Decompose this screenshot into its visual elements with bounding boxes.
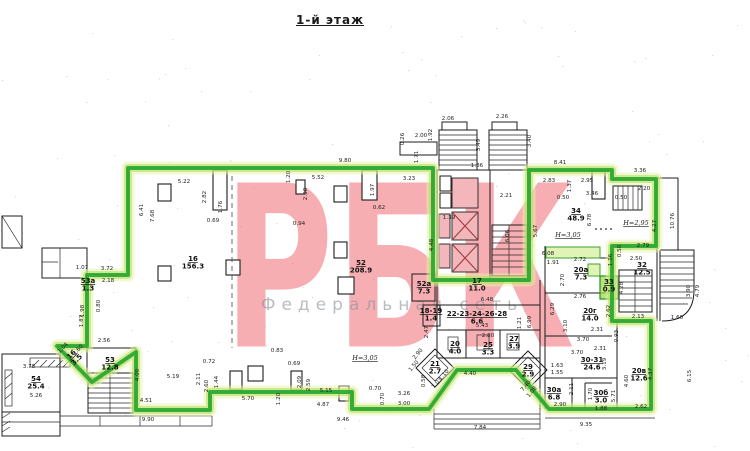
dimension-label: 6.08 [542, 251, 555, 257]
dimension-label: 4.51 [140, 398, 153, 404]
dimension-label: 2.70 [560, 273, 566, 286]
dimension-label: 5.67 [533, 224, 539, 237]
dimension-label: 3.26 [398, 391, 411, 397]
dimension-label: 3.78 [23, 364, 36, 370]
room-label: 53а1.3 [81, 277, 96, 293]
dimension-label: 3.23 [403, 176, 416, 182]
room-label: 3212.5 [633, 261, 650, 277]
room-label: 16156.3 [182, 255, 204, 271]
dimension-label: 2.31 [591, 327, 604, 333]
dimension-label: 2.72 [574, 257, 586, 263]
room-label: 20г14.0 [581, 307, 598, 323]
dimension-label: 2.95 [581, 178, 594, 184]
dimension-label: 4.48 [429, 238, 435, 251]
dimension-label: 2.59 [306, 378, 312, 391]
dimension-label: 3.70 [571, 350, 584, 356]
dimension-label: 3.36 [634, 168, 647, 174]
dimension-label: 0.69 [288, 361, 301, 367]
dimension-label: 1.70 [588, 387, 594, 400]
dimension-label: 10.76 [670, 213, 676, 229]
dimension-label: 2.50 [630, 256, 643, 262]
dimension-label: 9.46 [337, 417, 350, 423]
dimension-label: 0.50 [557, 195, 570, 201]
dimension-label: 1.37 [567, 179, 573, 192]
dimension-label: 0.83 [271, 348, 284, 354]
dimension-label: 5.15 [320, 388, 333, 394]
dimension-label: 3.72 [101, 266, 113, 272]
dimension-label: 3.90 [686, 284, 692, 297]
room-label: 30-3124.6 [581, 356, 604, 372]
dimension-label: 4.27 [652, 219, 658, 232]
dimension-label: 0.70 [369, 386, 382, 392]
dimension-label: 7.84 [474, 425, 487, 431]
elevator-machine-room [452, 178, 478, 208]
dimension-label: 4.79 [695, 284, 701, 297]
dimension-label: 9.35 [580, 422, 593, 428]
dimension-label: 1.88 [595, 406, 608, 412]
floor-plan-page: 1-й этаж РБК Федеральная сеть [0, 0, 750, 451]
dimension-label: 3.49 [476, 138, 482, 151]
room-label: 5425.4 [27, 375, 44, 391]
dimension-label: 5.71 [611, 389, 617, 402]
room-label: 52а7.3 [417, 280, 432, 296]
dimension-label: 9.90 [142, 417, 155, 423]
room-label: 330.9 [603, 278, 616, 294]
dimension-label: 2.13 [632, 314, 645, 320]
elevator-side-box [439, 244, 450, 268]
dimension-label: 2.20 [638, 186, 651, 192]
dimension-label: 1.21 [517, 316, 523, 329]
dimension-label: 1.71 [414, 150, 420, 163]
room-label: 30а6.8 [547, 386, 562, 402]
dimension-label: 4.37 [648, 367, 654, 380]
dimension-label: 4.28 [619, 281, 625, 294]
dimension-label: 3.19 [602, 357, 608, 370]
dimension-label: 2.76 [574, 294, 587, 300]
dimension-label: 2.80 [482, 333, 495, 339]
dimension-label: 2.47 [424, 325, 430, 338]
dimension-label: 1.87 [79, 314, 85, 327]
dimension-label: 4.60 [624, 374, 630, 387]
dimension-label: 2.09 [297, 375, 303, 388]
dimension-label: 1.91 [547, 260, 560, 266]
dimension-label: 3.46 [586, 191, 599, 197]
dimension-label: 3.40 [527, 134, 533, 147]
dimension-label: 8.41 [554, 160, 567, 166]
elevator-shaft-icon [452, 244, 478, 272]
dimension-label: 4.00 [135, 368, 141, 381]
dimension-label: 5.26 [30, 393, 43, 399]
dimension-label: 1.16 [608, 253, 614, 266]
room-label: 273.9 [508, 335, 521, 351]
dimension-label: 5.52 [312, 175, 324, 181]
dimension-label: 6.29 [550, 302, 556, 315]
room-label: 253.3 [482, 341, 495, 357]
dimension-label: 1.76 [218, 200, 224, 213]
dimension-label: 5.70 [242, 396, 255, 402]
dimension-label: 2.31 [594, 346, 607, 352]
dimension-label: 2.21 [500, 193, 513, 199]
dimension-label: 6.06 [505, 229, 511, 242]
floor-plan-drawing: РБК Федеральная сеть [0, 18, 750, 448]
dimension-label: 6.48 [481, 297, 494, 303]
dimension-label: 5.19 [167, 374, 180, 380]
room-label: 20в12.6 [630, 367, 647, 383]
dimension-label: 0.50 [615, 195, 628, 201]
dimension-label: 1.97 [370, 183, 376, 196]
grid-dots [595, 228, 612, 230]
dimension-label: 2.62 [635, 404, 647, 410]
room-label: 30б3.0 [594, 389, 609, 405]
dimension-label: 0.58 [421, 374, 427, 387]
room-label: 212.7 [429, 360, 442, 376]
dimension-label: 2.98 [303, 187, 309, 200]
height-label: Н=3,05 [351, 354, 378, 362]
left-annex [2, 216, 87, 278]
dimension-label: 6.41 [139, 203, 145, 216]
dimension-label: 2.11 [569, 382, 575, 395]
dimension-label: 3.00 [398, 401, 411, 407]
dimension-label: 1.07 [76, 265, 89, 271]
height-label: Н=2,95 [622, 219, 649, 227]
dimension-label: 0.94 [293, 221, 306, 227]
dimension-label: 2.62 [606, 305, 612, 317]
highlighted-cell [588, 264, 600, 276]
dimension-label: 2.11 [196, 372, 202, 385]
room-label: 204.0 [449, 340, 462, 356]
dimension-label: 6.15 [687, 369, 693, 382]
dimension-label: 2.79 [637, 243, 650, 249]
dimension-label: 2.18 [102, 278, 115, 284]
dimension-label: 1.39 [443, 215, 456, 221]
height-label: Н=3,05 [554, 231, 581, 239]
dimension-label: 2.06 [442, 116, 455, 122]
dimension-label: 0.70 [380, 392, 386, 405]
dimension-label: 9.80 [339, 158, 352, 164]
dimension-label: 0.62 [373, 205, 385, 211]
dimension-label: 1.63 [551, 363, 564, 369]
dimension-label: 6.78 [587, 213, 593, 226]
dimension-label: 1.44 [214, 375, 220, 388]
dimension-label: 1.55 [551, 370, 564, 376]
dimension-label: 2.00 [415, 133, 428, 139]
entrance-steps-icon [434, 409, 540, 429]
dimension-label: 5.22 [178, 179, 190, 185]
dimension-label: 3.70 [577, 337, 590, 343]
room-label: 20а7.3 [574, 266, 589, 282]
dimension-label: 1.86 [471, 163, 484, 169]
dimension-label: 2.60 [204, 379, 210, 392]
dimension-label: 2.83 [543, 178, 556, 184]
elevator-shaft-icon [452, 212, 478, 240]
dimension-label: 2.90 [554, 402, 567, 408]
room-label: 292.9 [522, 363, 535, 379]
dimension-label: 2.56 [98, 338, 111, 344]
dimension-label: 1.20 [286, 170, 292, 183]
dimension-label: 3.10 [563, 319, 569, 332]
dimension-label: 1.92 [428, 129, 434, 141]
dimension-label: 0.26 [400, 132, 406, 145]
dimension-label: 0.93 [614, 329, 620, 342]
dimension-label: 7.68 [150, 209, 156, 222]
dimension-label: 1.20 [276, 392, 282, 405]
dimension-label: 5.43 [476, 323, 489, 329]
dimension-label: 6.99 [527, 315, 533, 328]
dimension-label: 2.26 [496, 114, 509, 120]
dimension-label: 4.87 [317, 402, 330, 408]
dimension-label: 1.60 [671, 315, 684, 321]
dimension-label: 0.50 [617, 244, 623, 257]
dimension-label: 0.72 [203, 359, 215, 365]
dimension-label: 0.69 [207, 218, 220, 224]
dimension-label: 4.40 [464, 371, 477, 377]
dimension-label: 2.82 [202, 191, 208, 203]
dimension-label: 0.80 [96, 299, 102, 312]
